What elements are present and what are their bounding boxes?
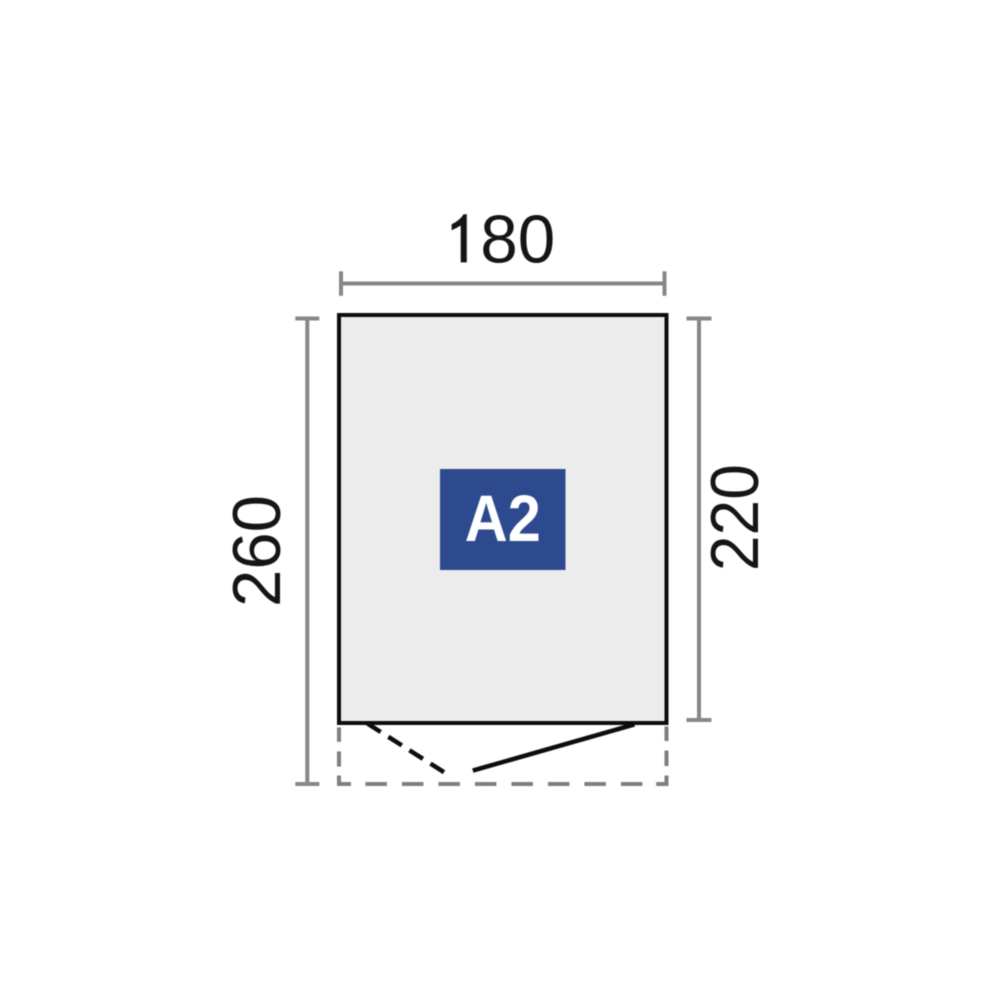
svg-text:220: 220 — [697, 464, 773, 571]
svg-text:80: 80 — [480, 201, 555, 277]
svg-text:A2: A2 — [465, 481, 541, 555]
svg-text:260: 260 — [219, 495, 295, 607]
